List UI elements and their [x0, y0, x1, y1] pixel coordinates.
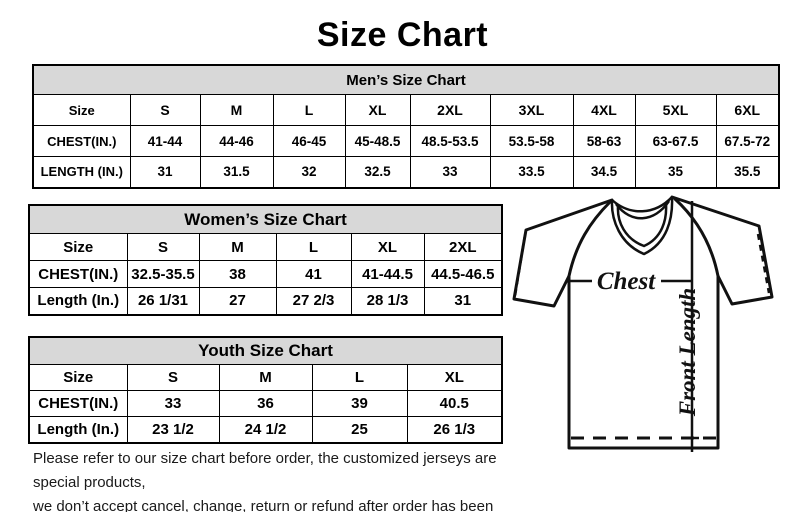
measurement-value-cell: 28 1/3 — [351, 288, 424, 315]
measurement-value-cell: 44-46 — [200, 126, 273, 157]
measurement-row: Length (In.)26 1/312727 2/328 1/331 — [29, 288, 502, 315]
measurement-value-cell: 32.5 — [345, 157, 410, 188]
size-header-row: SizeSMLXL2XL — [29, 234, 502, 261]
size-name-cell: L — [276, 234, 351, 261]
shirt-outline — [514, 197, 772, 448]
measurement-value-cell: 32.5-35.5 — [127, 261, 199, 288]
measurement-value-cell: 36 — [219, 391, 312, 417]
youth-table-title: Youth Size Chart — [29, 337, 502, 365]
measurement-value-cell: 58-63 — [573, 126, 635, 157]
measurement-value-cell: 38 — [199, 261, 276, 288]
chest-label: Chest — [597, 268, 656, 295]
womens-size-table: Women’s Size Chart SizeSMLXL2XLCHEST(IN.… — [28, 204, 503, 316]
measurement-value-cell: 25 — [312, 417, 407, 443]
measurement-value-cell: 26 1/3 — [407, 417, 502, 443]
collar-back-arc-inner — [616, 201, 669, 218]
tshirt-measurement-diagram: Chest Front Length — [508, 192, 800, 484]
size-header-row: SizeSMLXL2XL3XL4XL5XL6XL — [33, 95, 779, 126]
measurement-value-cell: 24 1/2 — [219, 417, 312, 443]
measurement-value-cell: 39 — [312, 391, 407, 417]
youth-table-title-row: Youth Size Chart — [29, 337, 502, 365]
size-header-row: SizeSMLXL — [29, 365, 502, 391]
size-column-label: Size — [33, 95, 130, 126]
size-name-cell: 3XL — [490, 95, 573, 126]
measurement-value-cell: 45-48.5 — [345, 126, 410, 157]
measurement-value-cell: 46-45 — [273, 126, 345, 157]
page-title: Size Chart — [0, 16, 805, 55]
disclaimer-text: Please refer to our size chart before or… — [33, 447, 543, 512]
size-name-cell: L — [273, 95, 345, 126]
size-name-cell: 5XL — [635, 95, 716, 126]
size-name-cell: M — [200, 95, 273, 126]
disclaimer-line-1: Please refer to our size chart before or… — [33, 447, 543, 495]
womens-table-title: Women’s Size Chart — [29, 205, 502, 234]
measurement-value-cell: 31.5 — [200, 157, 273, 188]
disclaimer-line-2: we don’t accept cancel, change, return o… — [33, 495, 543, 512]
measurement-value-cell: 67.5-72 — [716, 126, 779, 157]
row-label-cell: CHEST(IN.) — [29, 261, 127, 288]
mens-table-title: Men’s Size Chart — [33, 65, 779, 95]
tshirt-icon: Chest Front Length — [508, 192, 800, 484]
row-label-cell: CHEST(IN.) — [33, 126, 130, 157]
measurement-value-cell: 27 2/3 — [276, 288, 351, 315]
size-name-cell: M — [219, 365, 312, 391]
measurement-row: CHEST(IN.)33363940.5 — [29, 391, 502, 417]
measurement-value-cell: 63-67.5 — [635, 126, 716, 157]
size-name-cell: S — [127, 365, 219, 391]
size-name-cell: XL — [345, 95, 410, 126]
measurement-value-cell: 33.5 — [490, 157, 573, 188]
measurement-value-cell: 40.5 — [407, 391, 502, 417]
mens-table-body: SizeSMLXL2XL3XL4XL5XL6XLCHEST(IN.)41-444… — [33, 95, 779, 188]
size-name-cell: 6XL — [716, 95, 779, 126]
size-name-cell: 4XL — [573, 95, 635, 126]
mens-size-table: Men’s Size Chart SizeSMLXL2XL3XL4XL5XL6X… — [32, 64, 780, 189]
measurement-value-cell: 33 — [410, 157, 490, 188]
measurement-value-cell: 41-44.5 — [351, 261, 424, 288]
measurement-value-cell: 26 1/31 — [127, 288, 199, 315]
womens-table-body: SizeSMLXL2XLCHEST(IN.)32.5-35.5384141-44… — [29, 234, 502, 315]
measurement-row: CHEST(IN.)41-4444-4646-4545-48.548.5-53.… — [33, 126, 779, 157]
measurement-value-cell: 33 — [127, 391, 219, 417]
womens-table-title-row: Women’s Size Chart — [29, 205, 502, 234]
size-name-cell: L — [312, 365, 407, 391]
size-name-cell: S — [130, 95, 200, 126]
youth-size-table: Youth Size Chart SizeSMLXLCHEST(IN.)3336… — [28, 336, 503, 444]
size-name-cell: S — [127, 234, 199, 261]
measurement-value-cell: 35 — [635, 157, 716, 188]
measurement-value-cell: 32 — [273, 157, 345, 188]
mens-table-title-row: Men’s Size Chart — [33, 65, 779, 95]
measurement-value-cell: 31 — [130, 157, 200, 188]
size-name-cell: M — [199, 234, 276, 261]
measurement-value-cell: 34.5 — [573, 157, 635, 188]
row-label-cell: CHEST(IN.) — [29, 391, 127, 417]
measurement-row: LENGTH (IN.)3131.53232.53333.534.53535.5 — [33, 157, 779, 188]
measurement-value-cell: 41-44 — [130, 126, 200, 157]
size-column-label: Size — [29, 365, 127, 391]
measurement-row: CHEST(IN.)32.5-35.5384141-44.544.5-46.5 — [29, 261, 502, 288]
row-label-cell: Length (In.) — [29, 288, 127, 315]
size-column-label: Size — [29, 234, 127, 261]
size-name-cell: XL — [351, 234, 424, 261]
youth-table-body: SizeSMLXLCHEST(IN.)33363940.5Length (In.… — [29, 365, 502, 443]
row-label-cell: LENGTH (IN.) — [33, 157, 130, 188]
size-name-cell: 2XL — [424, 234, 502, 261]
measurement-value-cell: 31 — [424, 288, 502, 315]
size-name-cell: 2XL — [410, 95, 490, 126]
measurement-value-cell: 48.5-53.5 — [410, 126, 490, 157]
measurement-value-cell: 53.5-58 — [490, 126, 573, 157]
measurement-value-cell: 23 1/2 — [127, 417, 219, 443]
front-length-label: Front Length — [675, 288, 700, 417]
measurement-value-cell: 41 — [276, 261, 351, 288]
measurement-value-cell: 35.5 — [716, 157, 779, 188]
size-name-cell: XL — [407, 365, 502, 391]
measurement-row: Length (In.)23 1/224 1/22526 1/3 — [29, 417, 502, 443]
measurement-value-cell: 44.5-46.5 — [424, 261, 502, 288]
size-chart-page: Size Chart Men’s Size Chart SizeSMLXL2XL… — [0, 0, 805, 512]
measurement-value-cell: 27 — [199, 288, 276, 315]
row-label-cell: Length (In.) — [29, 417, 127, 443]
